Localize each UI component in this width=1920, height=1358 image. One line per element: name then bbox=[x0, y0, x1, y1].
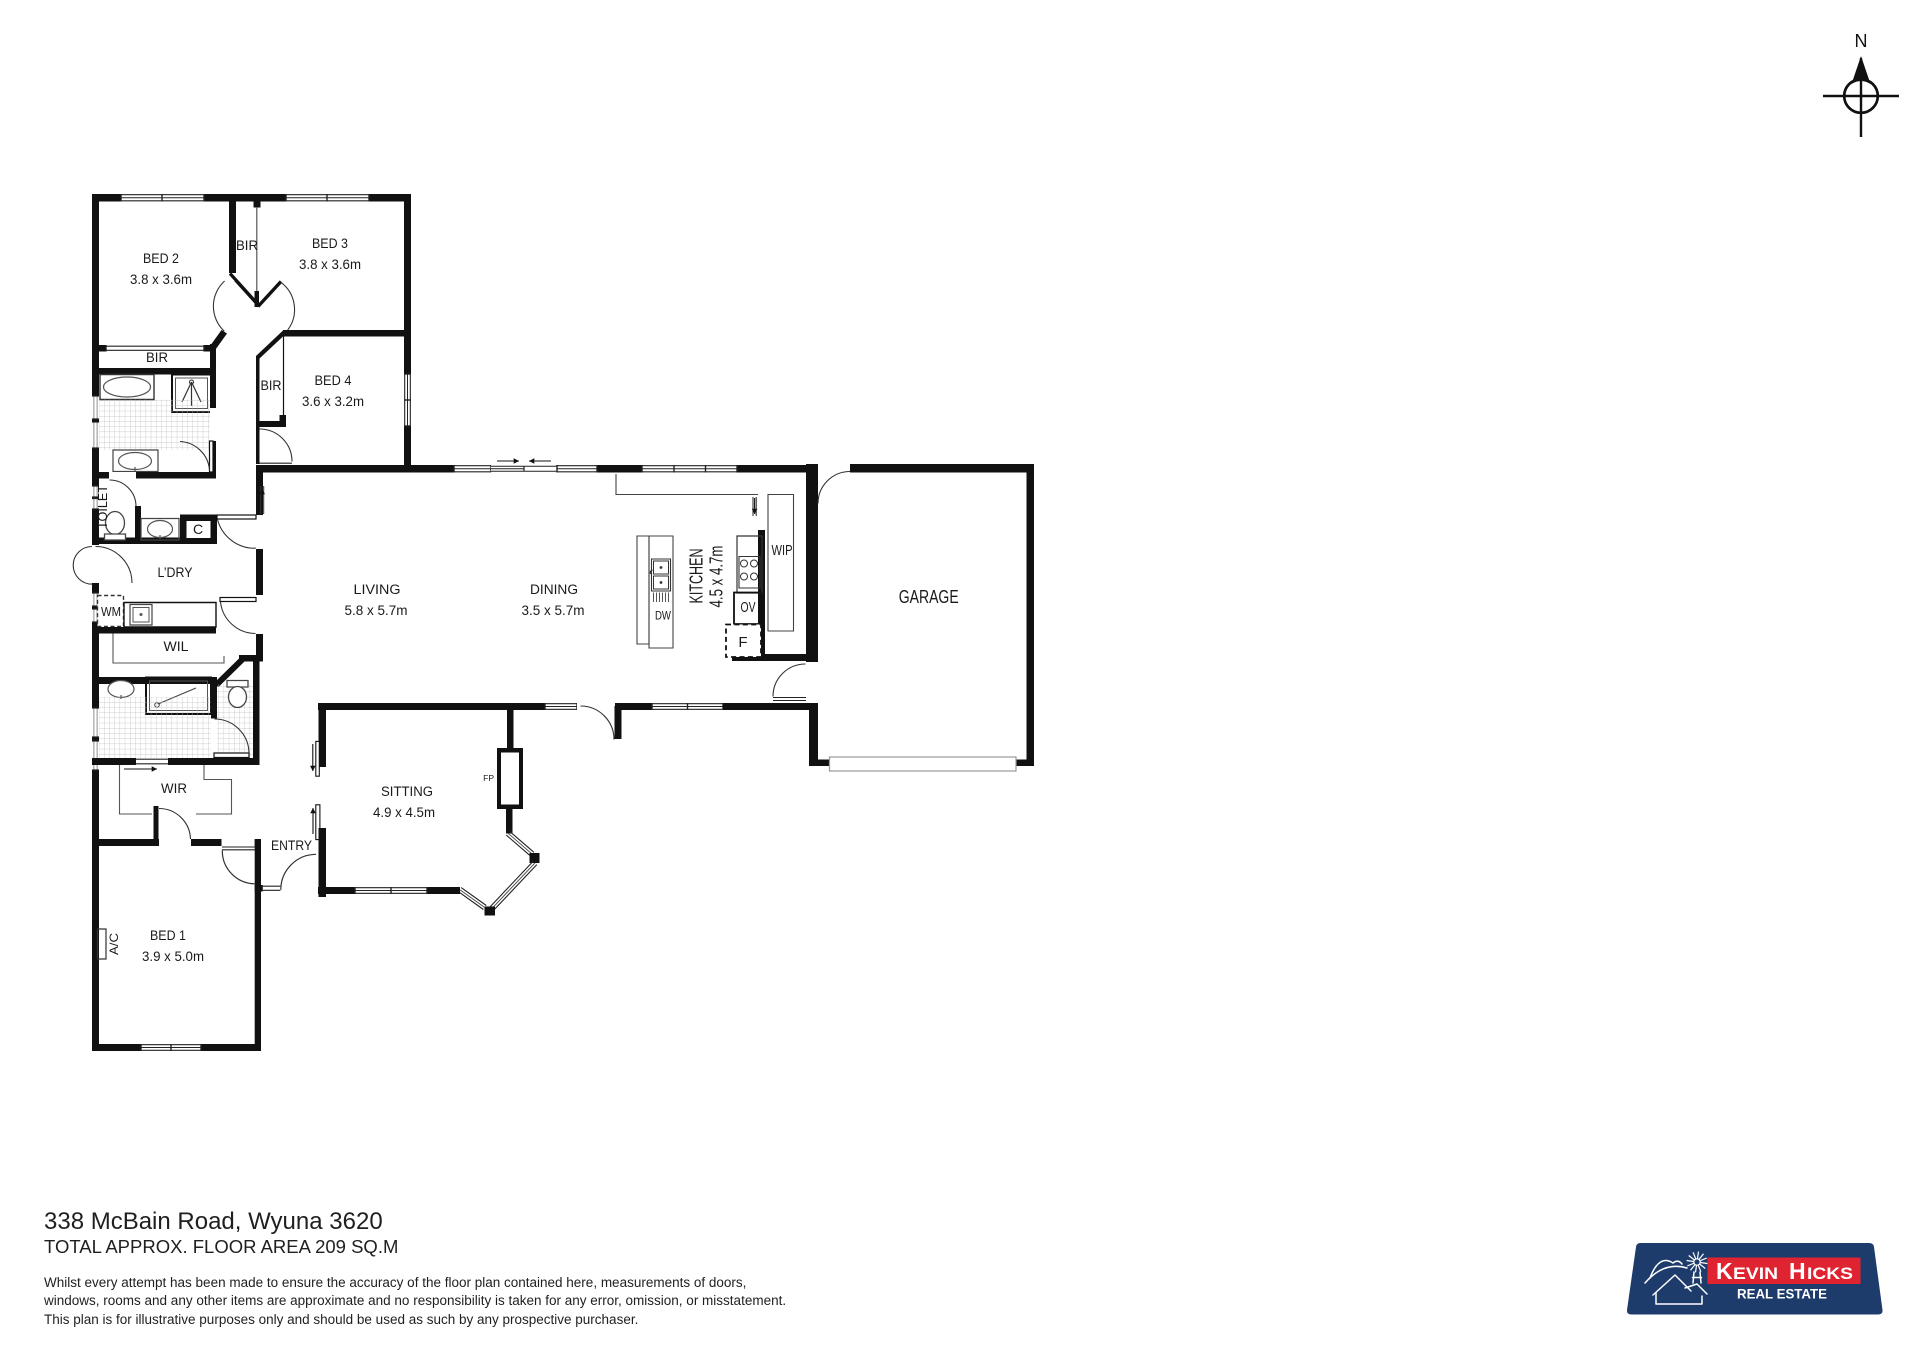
svg-text:3.6 x 3.2m: 3.6 x 3.2m bbox=[302, 394, 364, 409]
svg-text:4.5 x 4.7m: 4.5 x 4.7m bbox=[707, 546, 727, 608]
svg-text:N: N bbox=[1855, 31, 1868, 51]
svg-text:H: H bbox=[1789, 1258, 1806, 1284]
svg-text:BIR: BIR bbox=[236, 238, 258, 253]
svg-text:WIR: WIR bbox=[161, 781, 187, 796]
svg-text:A/C: A/C bbox=[107, 933, 121, 955]
svg-text:BED 1: BED 1 bbox=[150, 928, 186, 943]
svg-text:WIP: WIP bbox=[772, 543, 793, 559]
svg-text:4.9 x 4.5m: 4.9 x 4.5m bbox=[373, 805, 435, 820]
svg-text:BIR: BIR bbox=[261, 378, 282, 393]
svg-text:3.8 x 3.6m: 3.8 x 3.6m bbox=[299, 257, 361, 272]
svg-text:EVIN: EVIN bbox=[1733, 1264, 1778, 1283]
svg-text:3.9 x 5.0m: 3.9 x 5.0m bbox=[142, 949, 204, 964]
svg-text:REAL ESTATE: REAL ESTATE bbox=[1737, 1287, 1827, 1302]
svg-text:3.8 x 3.6m: 3.8 x 3.6m bbox=[130, 272, 192, 287]
svg-text:SITTING: SITTING bbox=[381, 784, 433, 799]
svg-text:3.5 x 5.7m: 3.5 x 5.7m bbox=[522, 603, 585, 618]
svg-text:L’DRY: L’DRY bbox=[158, 565, 193, 580]
svg-text:F: F bbox=[738, 634, 747, 651]
svg-text:C: C bbox=[193, 521, 203, 537]
svg-text:BED 3: BED 3 bbox=[312, 236, 348, 251]
svg-text:BED 4: BED 4 bbox=[315, 373, 352, 388]
svg-text:DW: DW bbox=[655, 609, 672, 623]
svg-text:FP: FP bbox=[483, 773, 494, 783]
svg-text:LIVING: LIVING bbox=[354, 582, 401, 597]
svg-text:OV: OV bbox=[741, 599, 756, 616]
svg-text:TOILET: TOILET bbox=[96, 485, 110, 529]
svg-text:DINING: DINING bbox=[530, 582, 578, 597]
svg-text:KITCHEN: KITCHEN bbox=[687, 549, 707, 604]
svg-text:5.8 x 5.7m: 5.8 x 5.7m bbox=[345, 603, 408, 618]
svg-text:WIL: WIL bbox=[164, 639, 189, 654]
svg-text:GARAGE: GARAGE bbox=[899, 587, 959, 607]
svg-text:K: K bbox=[1716, 1258, 1733, 1284]
svg-text:BIR: BIR bbox=[146, 350, 168, 365]
svg-text:ENTRY: ENTRY bbox=[271, 838, 312, 853]
svg-text:ICKS: ICKS bbox=[1807, 1264, 1853, 1283]
svg-text:WM: WM bbox=[101, 605, 121, 619]
svg-text:BED 2: BED 2 bbox=[143, 251, 179, 266]
